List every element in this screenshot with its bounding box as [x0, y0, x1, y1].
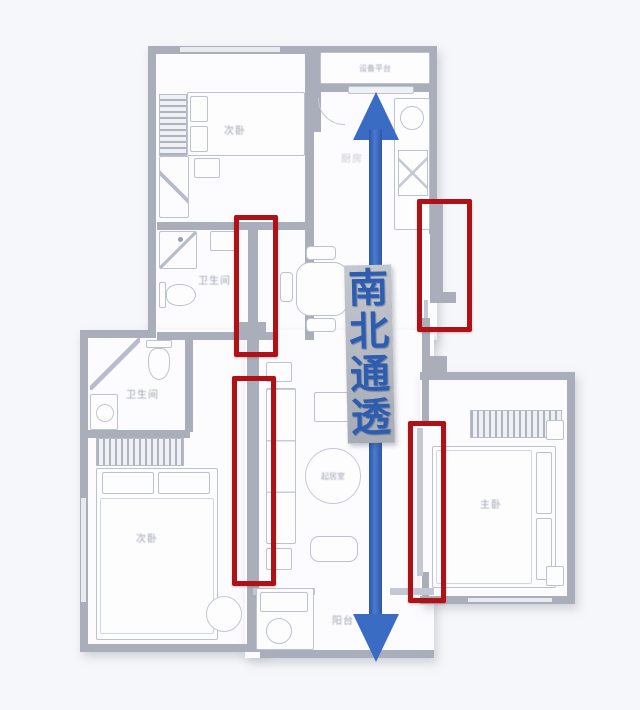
side-table	[194, 158, 220, 178]
bedroom-left-label: 次卧	[136, 530, 158, 545]
pillow	[536, 452, 552, 514]
bathroom-lower-label: 卫生间	[126, 386, 159, 401]
wardrobe-hatch	[159, 94, 187, 156]
wall-segment	[260, 650, 434, 658]
pillow	[102, 472, 154, 494]
dining-table	[296, 262, 348, 316]
pillow	[190, 96, 208, 122]
arrow-down-icon	[353, 614, 399, 662]
nightstand	[546, 566, 564, 586]
chair	[306, 318, 336, 332]
wall-segment	[567, 372, 575, 604]
living-room-rug: 起居室	[305, 448, 361, 504]
ventilation-highlight-3	[232, 376, 276, 586]
stove	[398, 150, 428, 196]
chair	[280, 272, 293, 302]
floorplan-diagram: 设备平台 次卧 厨房 卫生间 卫生间 次卧 起居室	[0, 0, 640, 710]
wall-segment	[148, 46, 156, 338]
closet	[159, 156, 189, 218]
ribbon-char: 北	[349, 311, 390, 355]
wall-segment	[422, 380, 429, 426]
living-room-label: 起居室	[321, 471, 345, 482]
equipment-platform: 设备平台	[320, 52, 430, 84]
rug-circle	[206, 596, 242, 632]
toilet-tank	[159, 282, 166, 308]
toilet	[166, 284, 196, 306]
bedroom-top-label: 次卧	[224, 122, 246, 137]
wall-segment	[185, 338, 193, 432]
window	[180, 47, 280, 52]
toilet-tank	[146, 340, 172, 348]
kitchen-sink	[400, 106, 424, 130]
ribbon-char: 透	[350, 397, 391, 441]
shower-head	[178, 237, 183, 242]
bed-cover	[436, 450, 532, 584]
ventilation-highlight-2	[417, 199, 472, 332]
wall-segment	[80, 330, 156, 338]
ventilation-highlight-4	[408, 421, 446, 603]
direction-ribbon: 南 北 通 透	[344, 265, 395, 444]
window	[468, 598, 552, 602]
kitchen-label: 厨房	[341, 150, 363, 165]
wall-segment	[80, 330, 88, 652]
bedroom-right-label: 主卧	[480, 496, 502, 511]
ribbon-char: 通	[350, 354, 391, 398]
utility-sink	[260, 592, 308, 612]
ventilation-highlight-1	[234, 215, 278, 357]
balcony-label: 阳台	[332, 612, 354, 627]
wall-segment	[157, 222, 305, 230]
nightstand	[546, 420, 564, 440]
pillow	[190, 126, 208, 152]
wardrobe-hatch	[96, 438, 184, 466]
chair	[306, 246, 336, 260]
wall-column	[425, 356, 447, 374]
ribbon-char: 南	[348, 268, 389, 312]
washer	[266, 618, 292, 644]
coffee-table	[310, 536, 358, 562]
equipment-platform-label: 设备平台	[359, 63, 391, 74]
bathroom-mid-label: 卫生间	[198, 272, 231, 287]
toilet	[148, 348, 170, 380]
sink-basin	[96, 404, 114, 422]
shower	[90, 338, 140, 390]
wall-segment	[88, 430, 190, 438]
wall-segment	[80, 644, 268, 652]
window	[81, 498, 86, 602]
pillow	[158, 472, 210, 494]
bed-cover	[100, 498, 214, 634]
